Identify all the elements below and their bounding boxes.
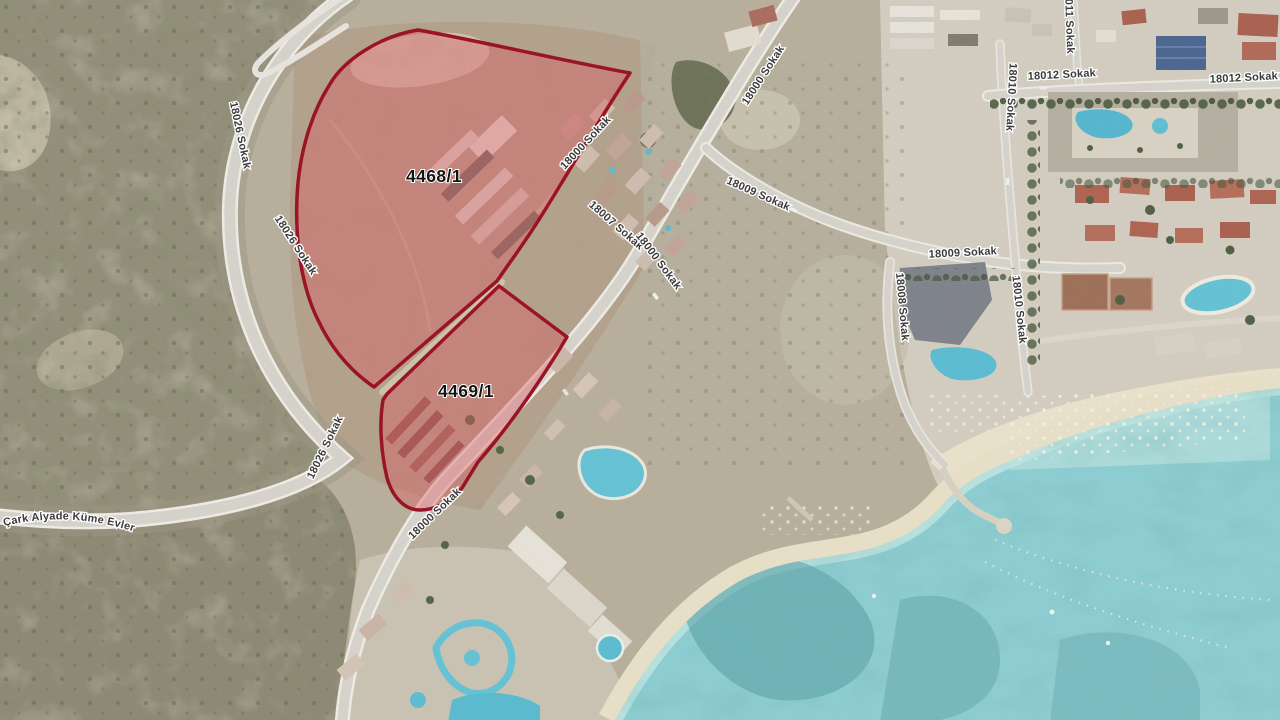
parcel-label-4468: 4468/1 (406, 166, 462, 186)
map-viewport[interactable]: 4468/1 4469/1 18026 Sokak 18026 Sokak 18… (0, 0, 1280, 720)
street-label-18011: 18011 Sokak (1062, 0, 1076, 55)
parcel-label-4469: 4469/1 (438, 381, 494, 401)
photo-grain (0, 0, 1280, 720)
satellite-map[interactable]: 4468/1 4469/1 18026 Sokak 18026 Sokak 18… (0, 0, 1280, 720)
